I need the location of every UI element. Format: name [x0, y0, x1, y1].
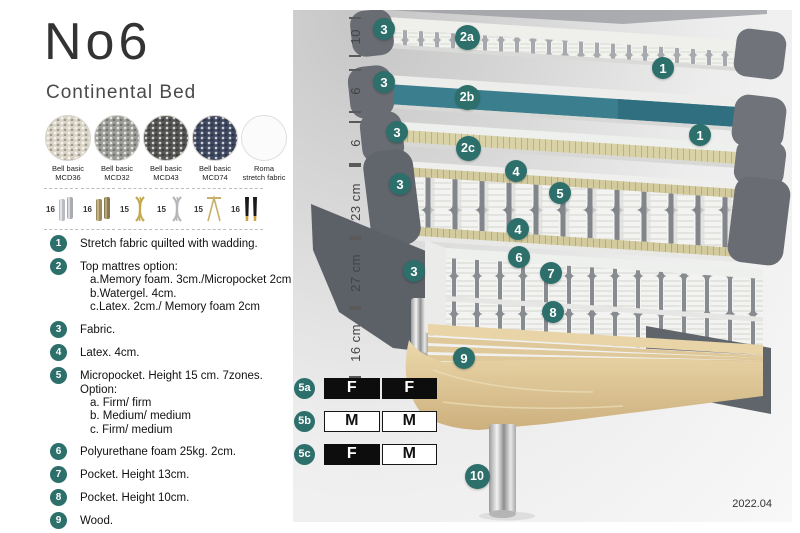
feature-number-badge: 3: [50, 321, 67, 338]
version-stamp: 2022.04: [660, 498, 772, 510]
feature-text: Stretch fabric quilted with wadding.: [80, 235, 258, 252]
diagram-callout-3: 3: [403, 260, 425, 282]
feature-number-badge: 1: [50, 235, 67, 252]
feature-text: Pocket. Height 10cm.: [80, 489, 189, 506]
feature-text: Latex. 4cm.: [80, 344, 139, 361]
ruler-segment: 16 cm: [342, 308, 368, 378]
feature-text: Wood.: [80, 512, 113, 529]
fabric-swatches: Bell basicMCD36Bell basicMCD32Bell basic…: [45, 115, 287, 182]
diagram-callout-9: 9: [453, 347, 475, 369]
fabric-swatch-label: Bell basicMCD36: [45, 164, 91, 182]
ruler-tick: [349, 121, 361, 123]
feature-number-badge: 5: [50, 367, 67, 384]
diagram-callout-3: 3: [389, 173, 411, 195]
feature-text-main: Latex. 4cm.: [80, 344, 139, 360]
fabric-swatch-circle: [45, 115, 91, 161]
fabric-swatch-circle: [94, 115, 140, 161]
firmness-cell: F: [324, 444, 380, 465]
fabric-swatch: Bell basicMCD43: [143, 115, 189, 182]
firmness-row-5b: 5bMM: [294, 410, 437, 432]
firmness-cell: M: [382, 411, 438, 432]
leg-option: 15: [192, 188, 226, 230]
diagram-callout-4: 4: [505, 160, 527, 182]
diagram-callout-3: 3: [373, 18, 395, 40]
diagram-callout-3: 3: [386, 121, 408, 143]
ruler-tick: [349, 111, 361, 113]
page-title: No6: [44, 16, 151, 68]
firmness-cell: F: [324, 378, 380, 399]
leg-height-label: 15: [157, 205, 166, 214]
diagram-callout-8: 8: [542, 301, 564, 323]
fabric-swatch-circle: [241, 115, 287, 161]
feature-number-badge: 9: [50, 512, 67, 529]
firmness-cell: F: [382, 378, 438, 399]
diagram-callout-6: 6: [508, 246, 530, 268]
ruler-tick: [349, 17, 361, 19]
ruler-segment: 23 cm: [342, 165, 368, 238]
ruler-tick: [349, 308, 361, 310]
feature-text-sub: b.Watergel. 4cm.: [90, 288, 291, 302]
feature-text-main: Micropocket. Height 15 cm. 7zones. Optio…: [80, 367, 302, 397]
feature-item: 2Top mattres option:a.Memory foam. 3cm./…: [50, 258, 302, 315]
leg-option: 15: [155, 188, 189, 230]
leg-icon-twist-gold: [130, 195, 150, 223]
ruler-label: 6: [348, 87, 363, 95]
feature-item: 4Latex. 4cm.: [50, 344, 302, 361]
feature-text-main: Top mattres option:: [80, 258, 291, 274]
firmness-bar: FF: [324, 378, 437, 399]
leg-icon-hairpin-gold: [204, 195, 224, 223]
diagram-callout-1: 1: [652, 57, 674, 79]
feature-text-sub: b. Medium/ medium: [90, 410, 302, 424]
fabric-swatch: Bell basicMCD74: [192, 115, 238, 182]
feature-number-badge: 2: [50, 258, 67, 275]
leg-icon-twist-silver: [167, 195, 187, 223]
diagram-callout-10: 10: [465, 464, 490, 489]
ruler-label: 27 cm: [348, 254, 363, 292]
ruler-tick: [349, 69, 361, 71]
diagram-callout-4: 4: [507, 218, 529, 240]
leg-option: 15: [118, 188, 152, 230]
feature-item: 1Stretch fabric quilted with wadding.: [50, 235, 302, 252]
leg-options: 161615151516: [44, 188, 263, 230]
leg-height-label: 15: [194, 205, 203, 214]
firmness-row-badge: 5a: [294, 378, 315, 399]
leg-icon-cylinder-silver: [56, 195, 76, 223]
feature-list: 1Stretch fabric quilted with wadding.2To…: [50, 235, 302, 533]
firmness-row-badge: 5c: [294, 444, 315, 465]
firmness-row-5a: 5aFF: [294, 377, 437, 399]
ruler-tick: [349, 238, 361, 240]
feature-item: 7Pocket. Height 13cm.: [50, 466, 302, 483]
ruler-label: 16 cm: [348, 324, 363, 362]
feature-text-main: Pocket. Height 13cm.: [80, 466, 189, 482]
feature-text: Pocket. Height 13cm.: [80, 466, 189, 483]
ruler-segment: 10: [342, 17, 368, 57]
leg-height-label: 16: [231, 205, 240, 214]
leg-height-label: 16: [46, 205, 55, 214]
diagram-callout-3: 3: [373, 71, 395, 93]
leg-height-label: 15: [120, 205, 129, 214]
ruler-tick: [349, 165, 361, 167]
leg-option: 16: [229, 188, 263, 230]
feature-number-badge: 7: [50, 466, 67, 483]
feature-text: Fabric.: [80, 321, 115, 338]
ruler-segment: 6: [342, 121, 368, 165]
feature-text-main: Wood.: [80, 512, 113, 528]
feature-text: Micropocket. Height 15 cm. 7zones. Optio…: [80, 367, 302, 438]
firmness-cell: M: [324, 411, 380, 432]
leg-icon-cylinder-bronze: [93, 195, 113, 223]
feature-item: 8Pocket. Height 10cm.: [50, 489, 302, 506]
fabric-swatch-label: Bell basicMCD74: [192, 164, 238, 182]
ruler-segment: 6: [342, 69, 368, 113]
ruler-segment: 27 cm: [342, 238, 368, 308]
leg-icon-tapered-black-gold: [241, 195, 261, 223]
feature-number-badge: 6: [50, 443, 67, 460]
ruler-label: 6: [348, 139, 363, 147]
diagram-callout-5: 5: [549, 182, 571, 204]
ruler-label: 10: [348, 29, 363, 44]
fabric-swatch-circle: [192, 115, 238, 161]
feature-text-sub: a. Firm/ firm: [90, 397, 302, 411]
fabric-swatch: Bell basicMCD32: [94, 115, 140, 182]
diagram-callout-1: 1: [689, 124, 711, 146]
feature-item: 6Polyurethane foam 25kg. 2cm.: [50, 443, 302, 460]
product-sheet: No6 Continental Bed Bell basicMCD36Bell …: [0, 0, 800, 533]
leg-option: 16: [44, 188, 78, 230]
fabric-swatch: Bell basicMCD36: [45, 115, 91, 182]
firmness-bar: FM: [324, 444, 437, 465]
page-subtitle: Continental Bed: [46, 82, 196, 104]
firmness-row-badge: 5b: [294, 411, 315, 432]
fabric-swatch-label: Romastretch fabric: [241, 164, 287, 182]
feature-text: Polyurethane foam 25kg. 2cm.: [80, 443, 236, 460]
feature-text: Top mattres option:a.Memory foam. 3cm./M…: [80, 258, 291, 315]
leg-option: 16: [81, 188, 115, 230]
diagram-callout-2b: 2b: [455, 85, 480, 110]
firmness-bar: MM: [324, 411, 437, 432]
feature-text-main: Fabric.: [80, 321, 115, 337]
feature-number-badge: 8: [50, 489, 67, 506]
firmness-row-5c: 5cFM: [294, 443, 437, 465]
leg-height-label: 16: [83, 205, 92, 214]
fabric-swatch-circle: [143, 115, 189, 161]
feature-text-sub: c. Firm/ medium: [90, 424, 302, 438]
feature-number-badge: 4: [50, 344, 67, 361]
feature-text-main: Stretch fabric quilted with wadding.: [80, 235, 258, 251]
fabric-swatch-label: Bell basicMCD43: [143, 164, 189, 182]
fabric-swatch-label: Bell basicMCD32: [94, 164, 140, 182]
diagram-callout-2c: 2c: [456, 136, 481, 161]
feature-text-sub: c.Latex. 2cm./ Memory foam 2cm: [90, 301, 291, 315]
feature-text-main: Polyurethane foam 25kg. 2cm.: [80, 443, 236, 459]
diagram-callout-2a: 2a: [455, 25, 480, 50]
feature-text-main: Pocket. Height 10cm.: [80, 489, 189, 505]
feature-item: 9Wood.: [50, 512, 302, 529]
feature-item: 5Micropocket. Height 15 cm. 7zones. Opti…: [50, 367, 302, 438]
feature-text-sub: a.Memory foam. 3cm./Micropocket 2cm: [90, 274, 291, 288]
fabric-swatch: Romastretch fabric: [241, 115, 287, 182]
ruler-label: 23 cm: [348, 183, 363, 221]
firmness-cell: M: [382, 444, 438, 465]
diagram-callout-7: 7: [540, 262, 562, 284]
ruler-tick: [349, 55, 361, 57]
feature-item: 3Fabric.: [50, 321, 302, 338]
